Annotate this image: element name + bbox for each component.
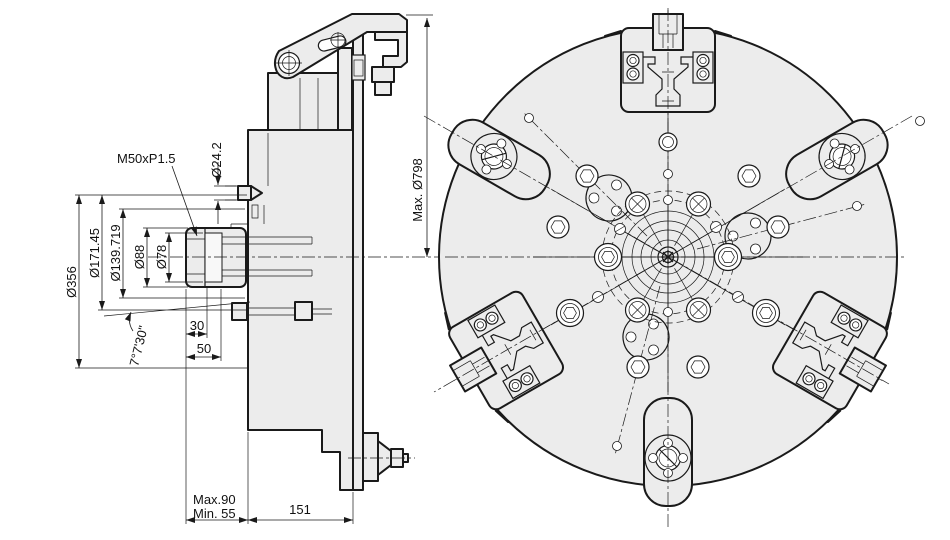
hex-bolt xyxy=(687,356,709,378)
dim-bore-88: Ø88 xyxy=(132,245,147,270)
slotted-hole xyxy=(593,292,604,303)
hex-socket-screw xyxy=(753,300,780,327)
side-view-body xyxy=(148,14,438,490)
hex-bolt xyxy=(738,165,760,187)
cross-screw xyxy=(687,192,711,216)
hex-socket-screw xyxy=(557,300,584,327)
small-hole xyxy=(664,308,673,317)
technical-drawing-canvas: M50xP1.5 Ø24.2 Ø356 Ø171.45 Ø139.719 Ø88… xyxy=(0,0,950,540)
slotted-hole xyxy=(733,292,744,303)
hex-socket-screw xyxy=(715,244,742,271)
dim-stroke-max: Max.90 xyxy=(193,492,236,507)
small-hole xyxy=(664,196,673,205)
dim-max-swing: Max. Ø798 xyxy=(410,158,425,222)
dim-taper-angle: 7°7'30" xyxy=(126,324,151,368)
hex-bolt xyxy=(547,216,569,238)
hex-bolt xyxy=(627,356,649,378)
dim-bore-78: Ø78 xyxy=(154,245,169,270)
hex-bolt xyxy=(767,216,789,238)
side-view: M50xP1.5 Ø24.2 Ø356 Ø171.45 Ø139.719 Ø88… xyxy=(64,14,438,524)
dim-stroke-min: Min. 55 xyxy=(193,506,236,521)
small-hole xyxy=(613,442,622,451)
small-hole xyxy=(853,202,862,211)
dim-thread: M50xP1.5 xyxy=(117,151,176,166)
draw-nut xyxy=(205,233,222,282)
chuck-drawing: M50xP1.5 Ø24.2 Ø356 Ø171.45 Ø139.719 Ø88… xyxy=(0,0,950,540)
dim-body-dia: Ø356 xyxy=(64,266,79,298)
small-hole xyxy=(525,114,534,123)
back-plate xyxy=(353,30,363,490)
pilot-hole xyxy=(659,133,677,151)
center-mark xyxy=(661,250,675,264)
dim-151: 151 xyxy=(289,502,311,517)
cross-screw xyxy=(626,298,650,322)
cross-screw xyxy=(687,298,711,322)
cross-screw xyxy=(626,192,650,216)
dim-50: 50 xyxy=(197,341,211,356)
front-view xyxy=(423,8,925,528)
hex-socket-screw xyxy=(595,244,622,271)
small-hole xyxy=(916,117,925,126)
dim-flange-dia: Ø171.45 xyxy=(87,228,102,278)
hex-bolt xyxy=(576,165,598,187)
dim-bolt-circle-dia: Ø139.719 xyxy=(108,224,123,281)
thread-leader-line xyxy=(172,166,197,236)
dim-30: 30 xyxy=(190,318,204,333)
hook-claw xyxy=(375,32,407,67)
slotted-hole xyxy=(615,224,626,235)
slotted-hole xyxy=(711,222,722,233)
small-hole xyxy=(664,170,673,179)
dim-pilot-dia: Ø24.2 xyxy=(209,142,224,177)
